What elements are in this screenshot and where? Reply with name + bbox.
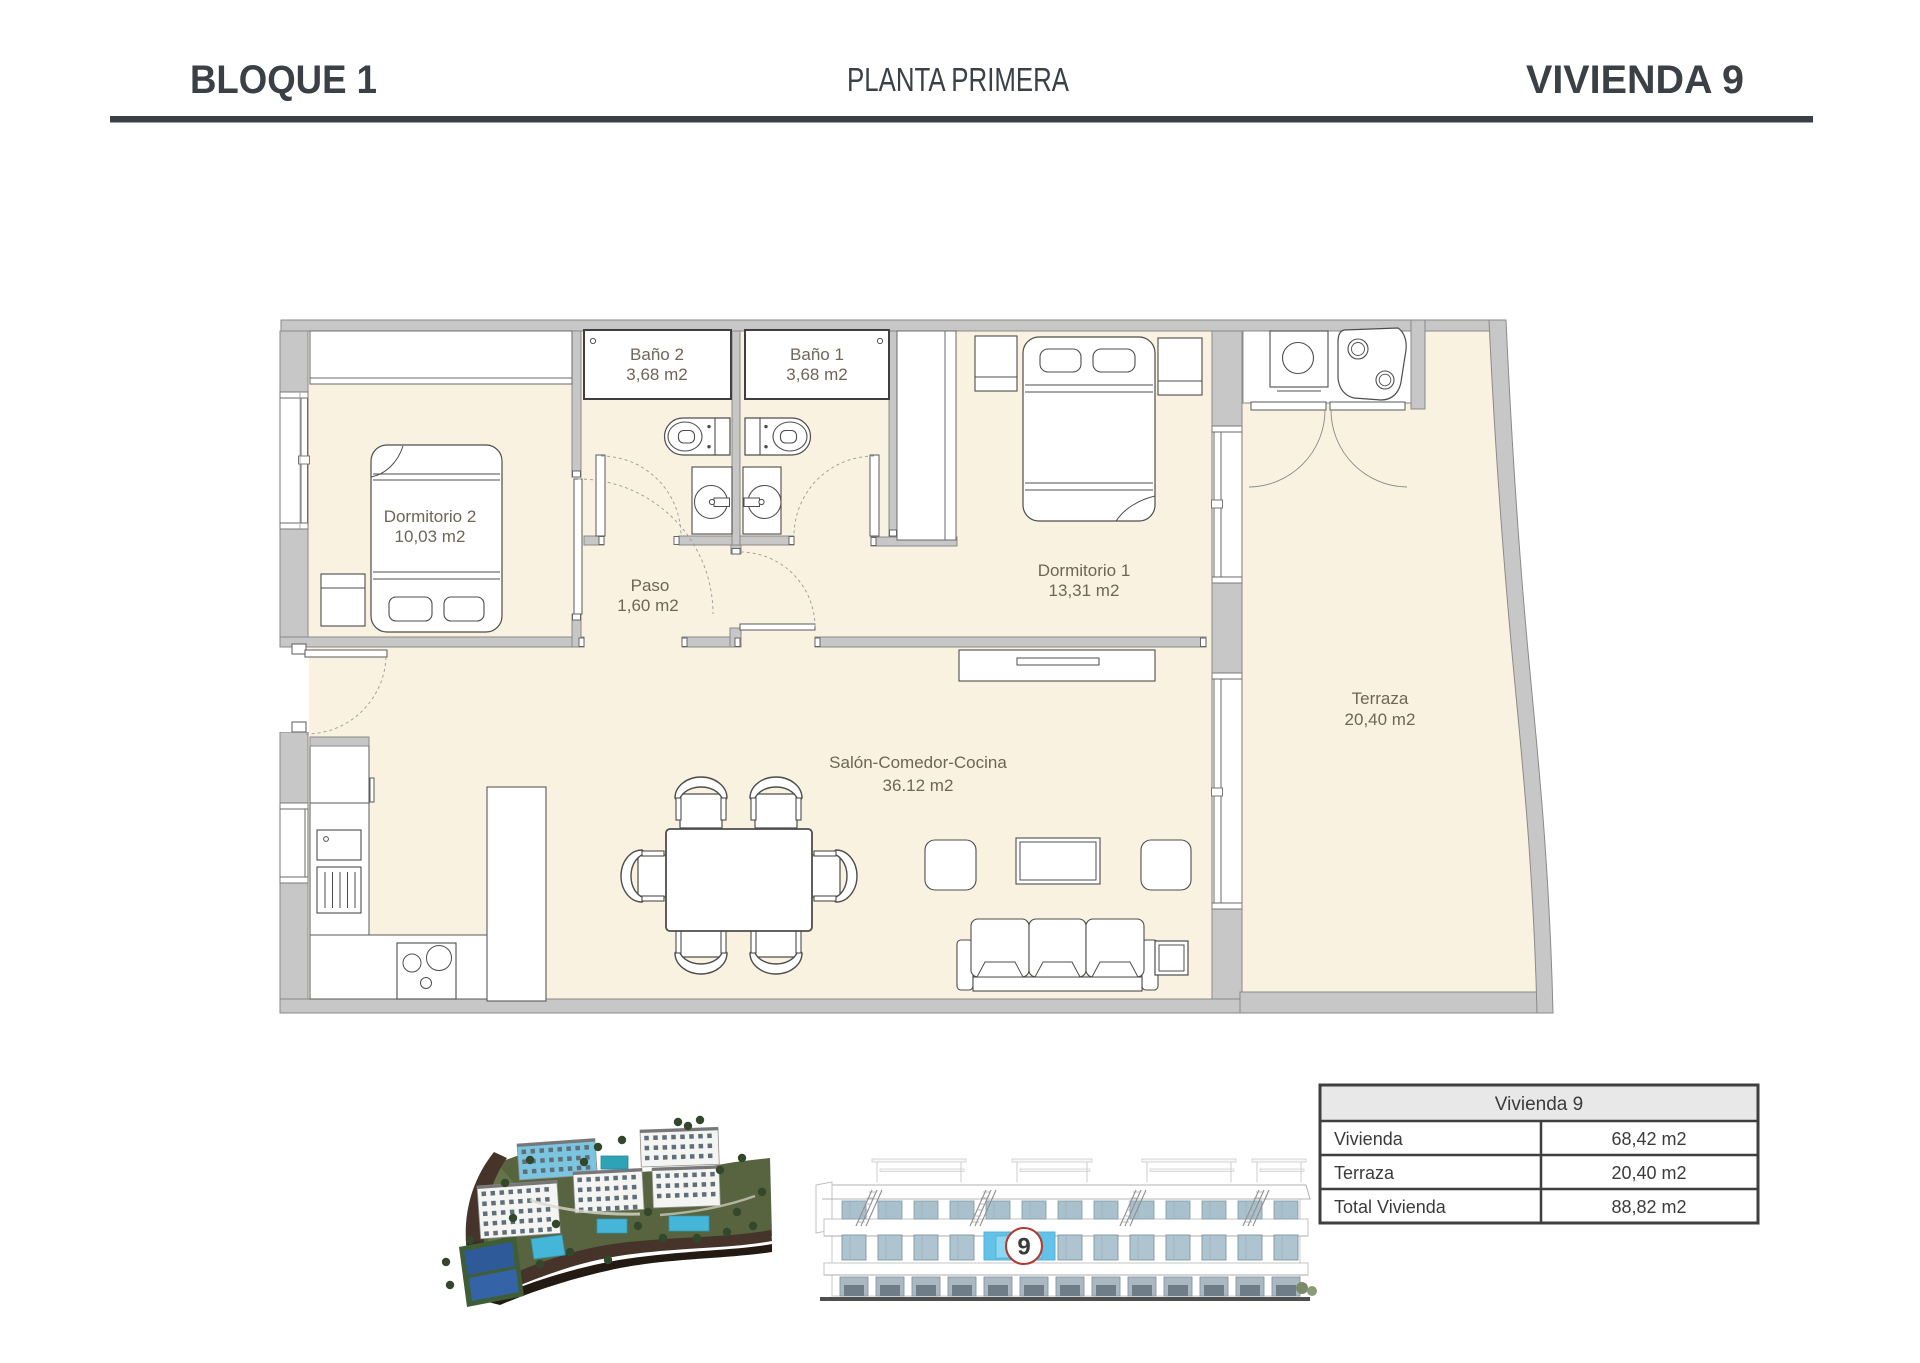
svg-text:Baño 2: Baño 2: [630, 345, 684, 364]
svg-text:10,03 m2: 10,03 m2: [395, 527, 466, 546]
svg-text:88,82 m2: 88,82 m2: [1611, 1197, 1686, 1217]
svg-text:Vivienda: Vivienda: [1334, 1129, 1404, 1149]
svg-text:13,31 m2: 13,31 m2: [1049, 581, 1120, 600]
svg-text:3,68 m2: 3,68 m2: [626, 365, 687, 384]
svg-text:Terraza: Terraza: [1352, 689, 1409, 708]
svg-text:20,40 m2: 20,40 m2: [1611, 1163, 1686, 1183]
svg-text:9: 9: [1017, 1234, 1030, 1261]
svg-text:PLANTA PRIMERA: PLANTA PRIMERA: [847, 61, 1069, 98]
svg-text:Baño 1: Baño 1: [790, 345, 844, 364]
svg-text:Vivienda 9: Vivienda 9: [1495, 1094, 1583, 1115]
svg-text:20,40 m2: 20,40 m2: [1345, 710, 1416, 729]
svg-text:BLOQUE 1: BLOQUE 1: [190, 58, 377, 102]
svg-text:68,42 m2: 68,42 m2: [1611, 1129, 1686, 1149]
svg-text:Terraza: Terraza: [1334, 1163, 1395, 1183]
svg-text:1,60 m2: 1,60 m2: [617, 596, 678, 615]
svg-text:Salón-Comedor-Cocina: Salón-Comedor-Cocina: [829, 753, 1007, 772]
svg-text:Paso: Paso: [631, 576, 670, 595]
svg-text:Dormitorio 1: Dormitorio 1: [1038, 561, 1131, 580]
svg-text:3,68 m2: 3,68 m2: [786, 365, 847, 384]
svg-text:Total Vivienda: Total Vivienda: [1334, 1197, 1447, 1217]
svg-text:VIVIENDA 9: VIVIENDA 9: [1526, 58, 1744, 102]
svg-text:Dormitorio 2: Dormitorio 2: [384, 507, 477, 526]
svg-text:36.12 m2: 36.12 m2: [883, 776, 954, 795]
